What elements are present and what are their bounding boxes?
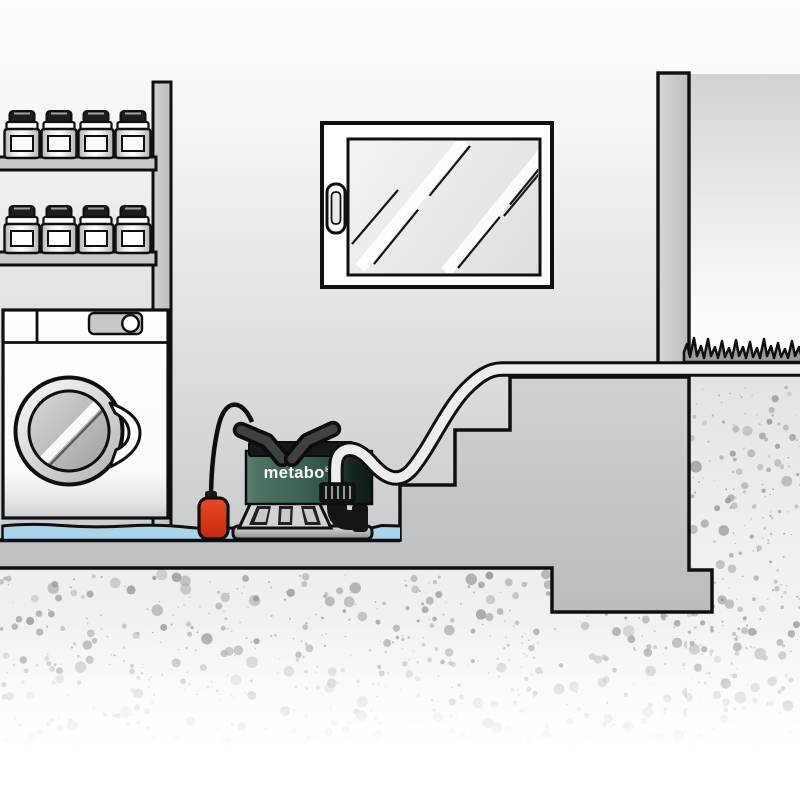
washing-machine (3, 310, 168, 518)
outlet-end (352, 504, 368, 532)
window-handle-grip (332, 192, 341, 224)
metabo-logo: metabo® (264, 464, 331, 482)
soil-bottom-fade (0, 626, 800, 800)
illustration-stage: metabo® (0, 0, 800, 800)
house-wall (658, 73, 689, 373)
jar (116, 206, 151, 253)
jar (116, 111, 151, 158)
skirt-vents (249, 506, 321, 525)
jar (5, 111, 40, 158)
hose-coupling (320, 483, 355, 502)
jar (79, 111, 114, 158)
scene-illustration: metabo® (0, 0, 800, 800)
jar (42, 206, 77, 253)
jar (5, 206, 40, 253)
outdoor-sky (689, 74, 800, 366)
float-switch (199, 498, 228, 539)
jar (42, 111, 77, 158)
window (322, 123, 552, 287)
jar (79, 206, 114, 253)
program-knob (122, 315, 139, 332)
